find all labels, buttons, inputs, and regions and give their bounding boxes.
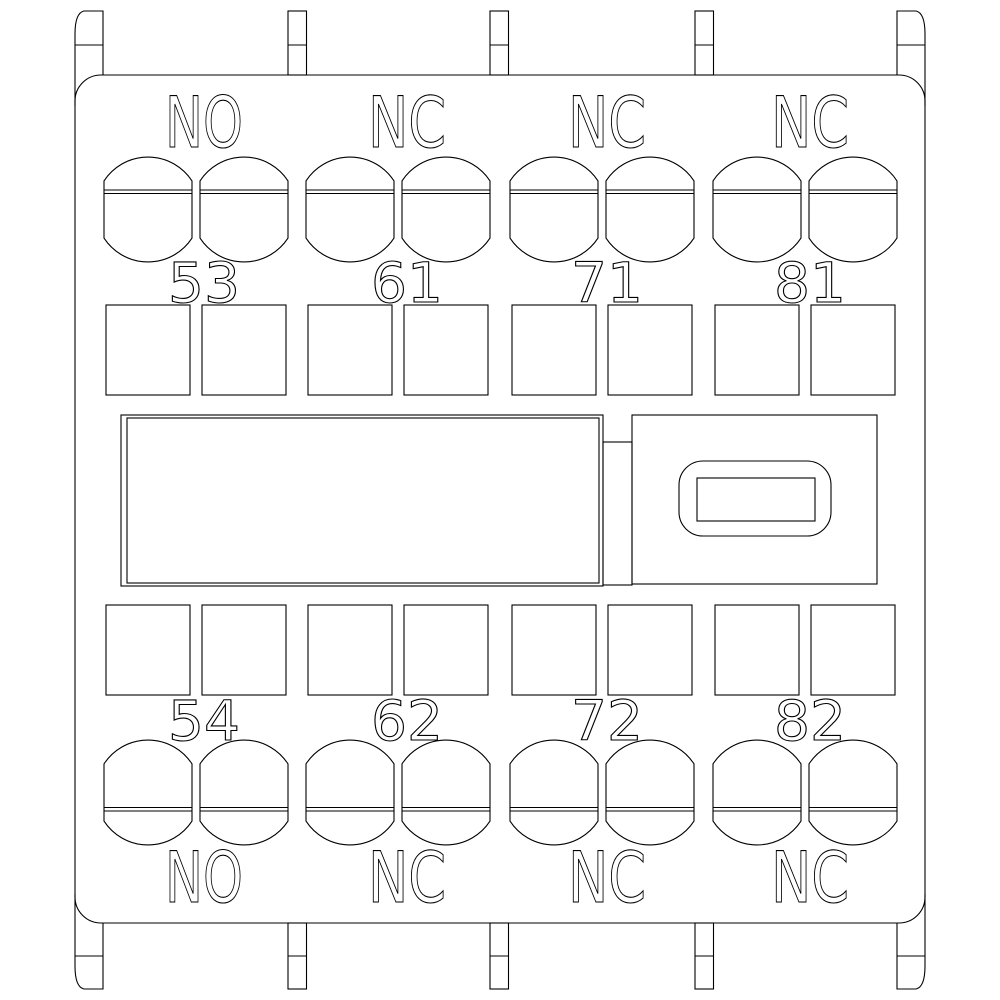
contact-type-label-top-2: NC: [368, 82, 446, 164]
contact-block-drawing: NO5354NONC6162NCNC7172NCNC8182NC: [0, 0, 1000, 1000]
terminal-number-top-4: 81: [774, 251, 846, 315]
terminal-number-top-1: 53: [168, 251, 240, 315]
terminal-number-top-3: 71: [571, 251, 643, 315]
screw-terminal-top-2: [402, 157, 490, 262]
contact-type-label-top-4: NC: [771, 82, 849, 164]
contact-type-label-top-1: NO: [165, 82, 243, 164]
background: [0, 0, 1000, 1000]
screw-terminal-bottom-4: [713, 740, 801, 845]
screw-terminal-bottom-3: [606, 740, 694, 845]
screw-terminal-top-3: [510, 157, 598, 262]
screw-terminal-bottom-2: [306, 740, 394, 845]
terminal-number-bottom-4: 82: [774, 689, 846, 753]
screw-terminal-bottom-1: [200, 740, 288, 845]
screw-terminal-bottom-3: [510, 740, 598, 845]
screw-terminal-bottom-1: [104, 740, 192, 845]
screw-terminal-top-1: [200, 157, 288, 262]
contact-type-label-bottom-3: NC: [568, 837, 646, 919]
screw-terminal-top-4: [809, 157, 897, 262]
contact-type-label-bottom-2: NC: [368, 837, 446, 919]
screw-terminal-top-3: [606, 157, 694, 262]
drawing-canvas: NO5354NONC6162NCNC7172NCNC8182NC: [0, 0, 1000, 1000]
contact-type-label-top-3: NC: [568, 82, 646, 164]
terminal-number-bottom-1: 54: [168, 689, 240, 753]
contact-type-label-bottom-4: NC: [771, 837, 849, 919]
terminal-number-bottom-2: 62: [371, 689, 443, 753]
screw-terminal-bottom-2: [402, 740, 490, 845]
screw-terminal-bottom-4: [809, 740, 897, 845]
screw-terminal-top-4: [713, 157, 801, 262]
terminal-number-bottom-3: 72: [571, 689, 643, 753]
contact-type-label-bottom-1: NO: [165, 837, 243, 919]
screw-terminal-top-1: [104, 157, 192, 262]
screw-terminal-top-2: [306, 157, 394, 262]
terminal-number-top-2: 61: [371, 251, 443, 315]
